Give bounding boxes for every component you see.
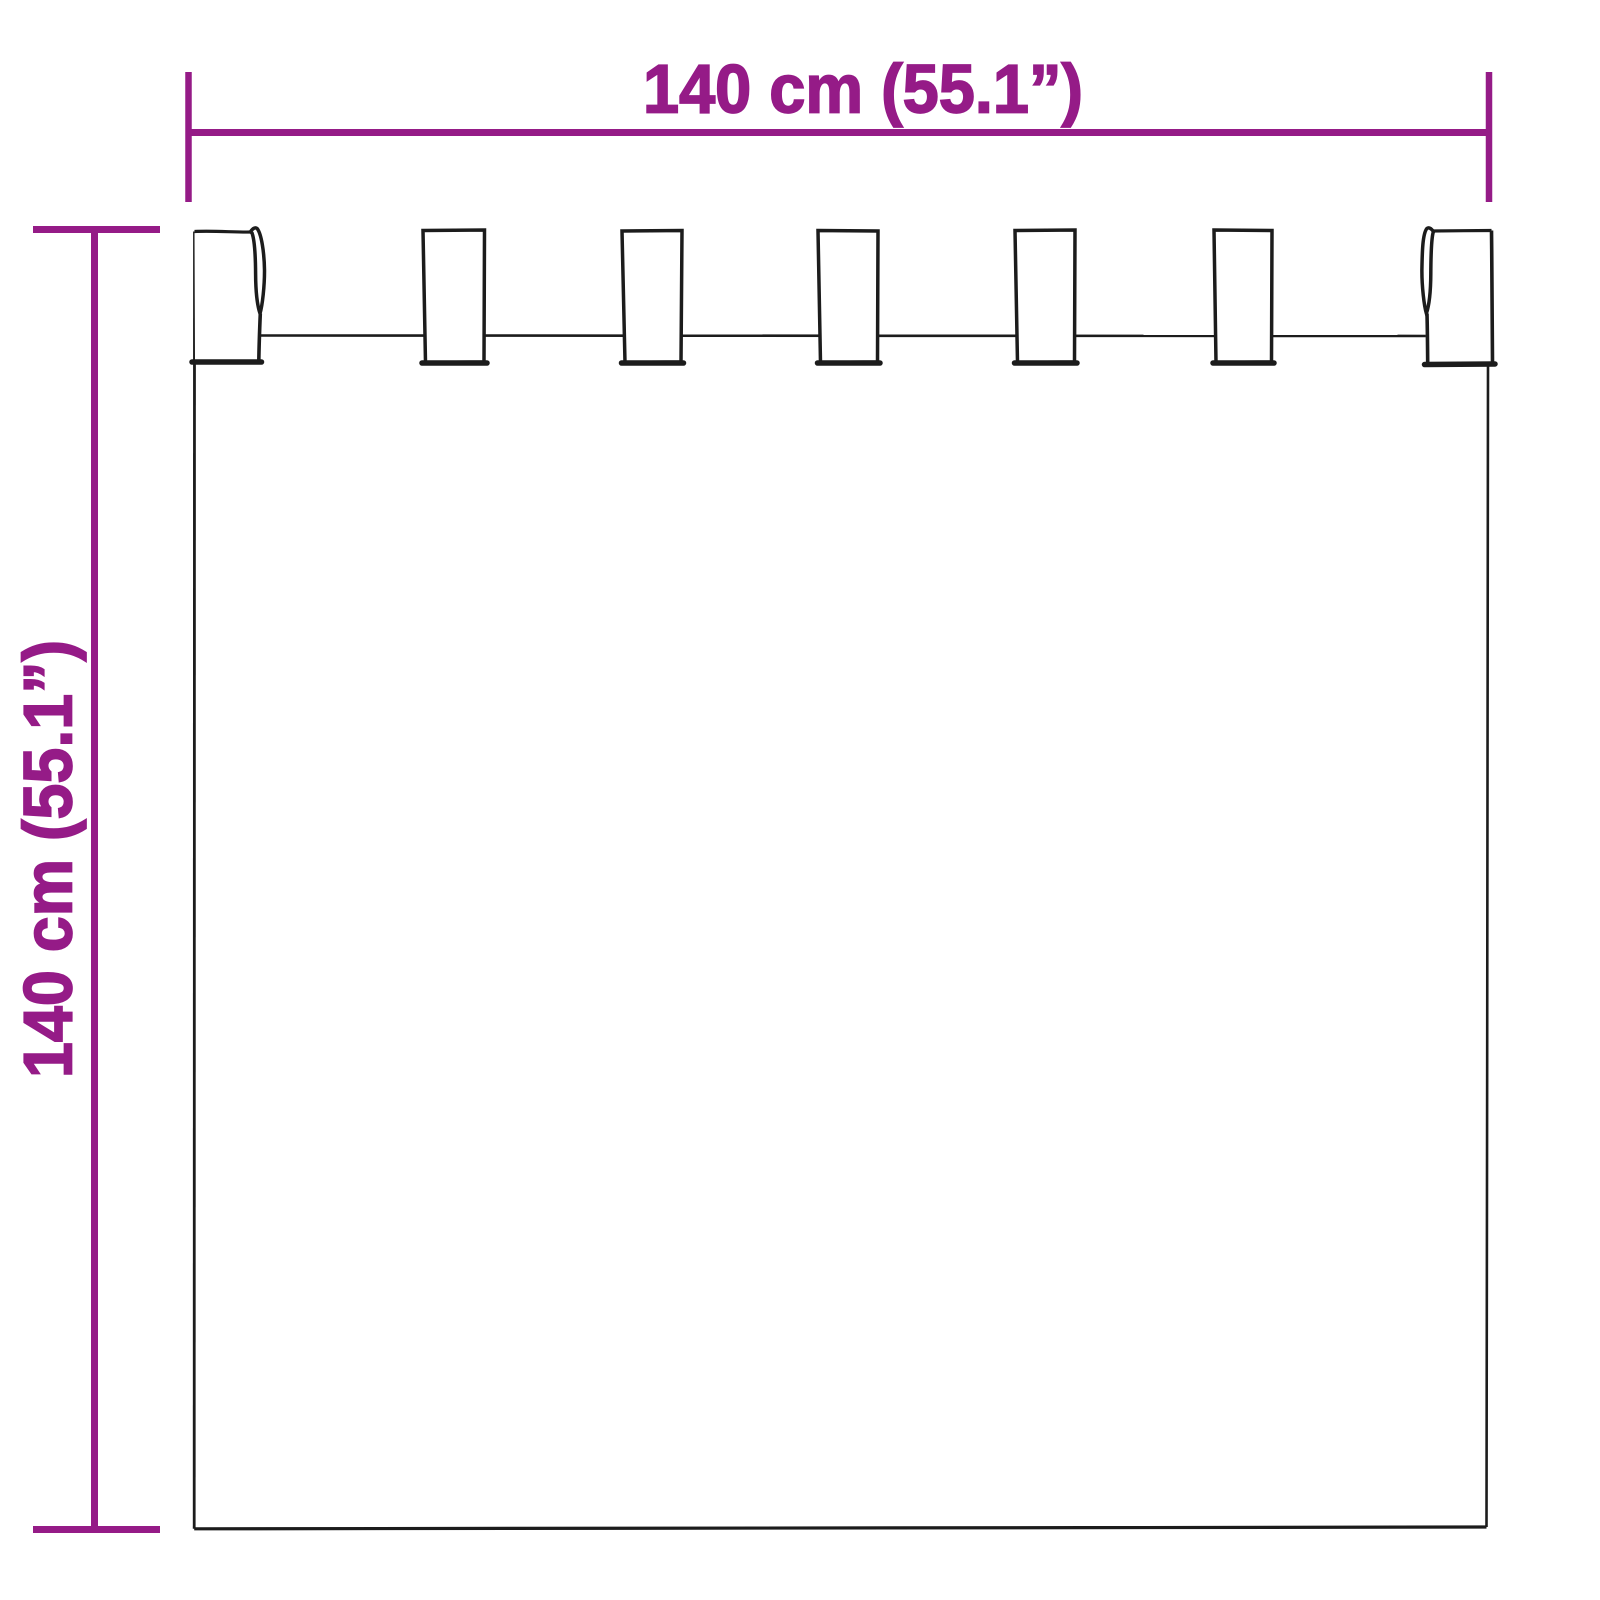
svg-text:140 cm (55.1”): 140 cm (55.1”) [643, 51, 1083, 128]
svg-text:140 cm (55.1”): 140 cm (55.1”) [10, 640, 87, 1078]
